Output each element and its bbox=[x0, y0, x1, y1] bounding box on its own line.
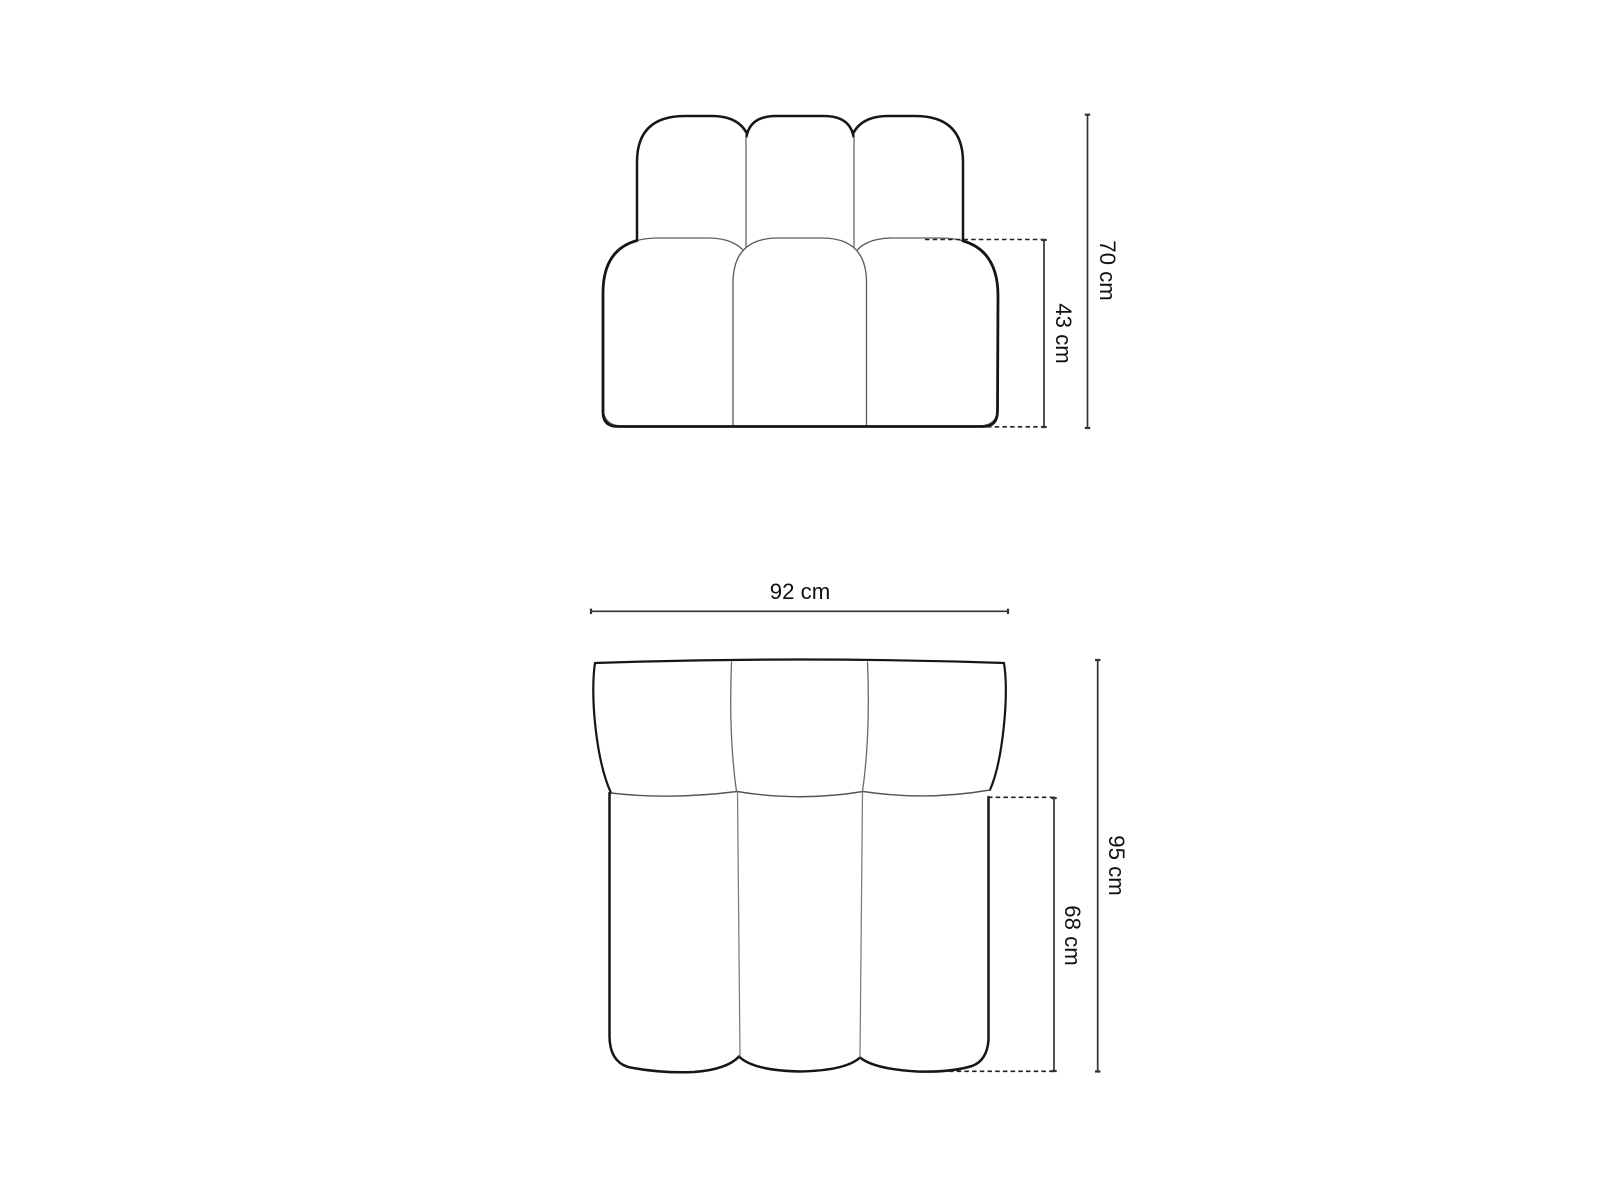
svg-text:70 cm: 70 cm bbox=[1095, 240, 1120, 300]
svg-text:43 cm: 43 cm bbox=[1051, 303, 1076, 363]
svg-text:68 cm: 68 cm bbox=[1060, 905, 1085, 965]
svg-text:92 cm: 92 cm bbox=[770, 579, 830, 604]
svg-text:95 cm: 95 cm bbox=[1104, 835, 1129, 895]
